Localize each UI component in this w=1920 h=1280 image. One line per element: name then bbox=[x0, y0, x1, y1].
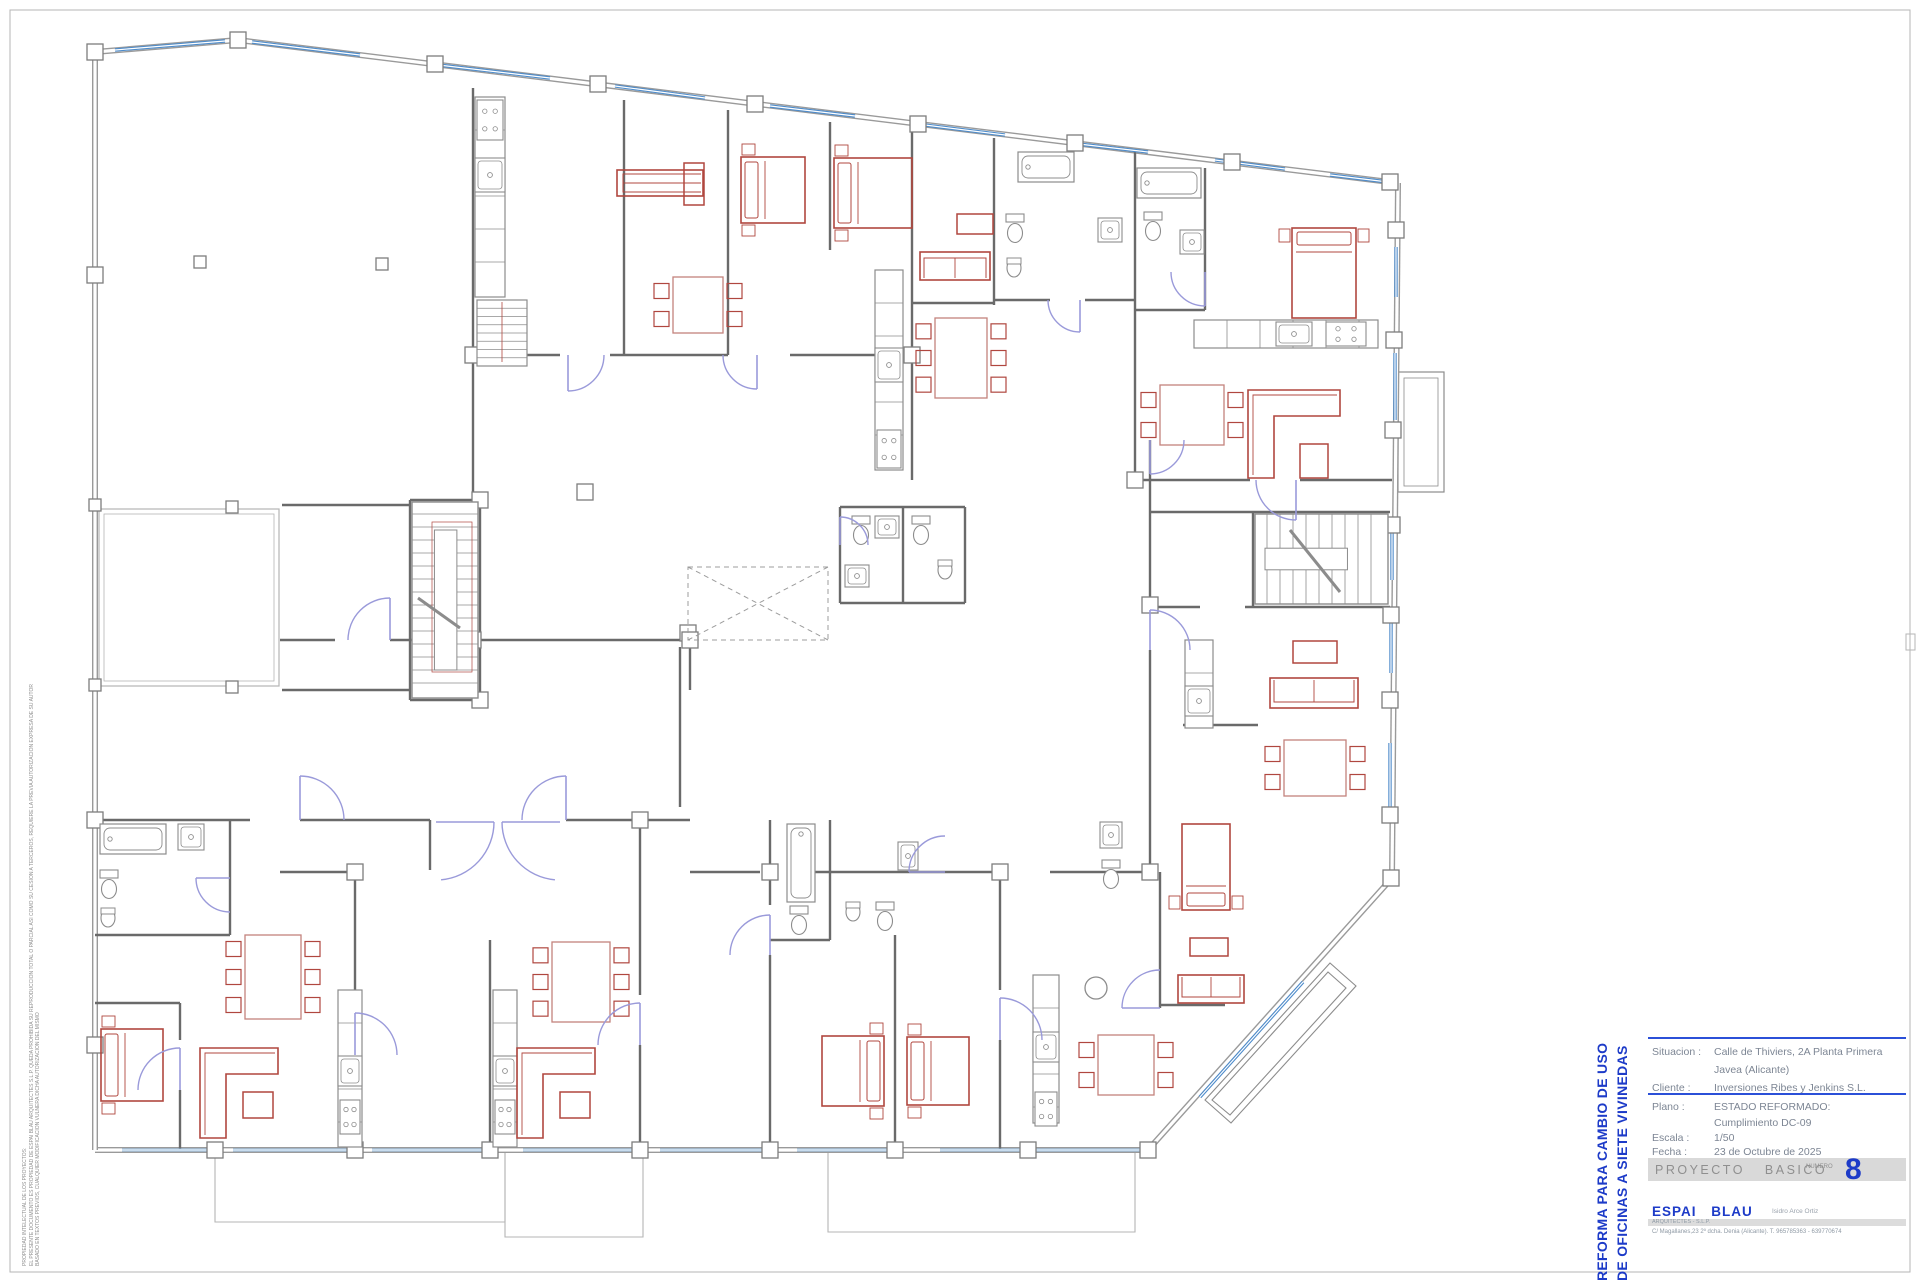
window bbox=[615, 86, 705, 98]
column bbox=[762, 1142, 778, 1158]
firm-name: ESPAI BLAU bbox=[1652, 1204, 1753, 1219]
door bbox=[502, 822, 560, 880]
bed bbox=[1279, 228, 1369, 318]
coffee-table bbox=[243, 1092, 273, 1118]
column bbox=[577, 484, 593, 500]
window bbox=[430, 64, 550, 78]
toilet bbox=[876, 902, 894, 931]
column bbox=[992, 864, 1008, 880]
sink bbox=[1098, 218, 1122, 242]
column bbox=[207, 1142, 223, 1158]
architect-name: Isidro Arce Ortiz bbox=[1772, 1208, 1818, 1215]
door bbox=[196, 878, 230, 912]
sink bbox=[178, 824, 204, 850]
door bbox=[348, 598, 390, 640]
cooktop bbox=[340, 1100, 360, 1134]
door bbox=[1171, 272, 1205, 306]
sink bbox=[875, 516, 899, 538]
column bbox=[1142, 864, 1158, 880]
column bbox=[376, 258, 388, 270]
sink bbox=[493, 1056, 517, 1086]
staircase bbox=[1255, 514, 1388, 604]
fecha-value: 23 de Octubre de 2025 bbox=[1714, 1146, 1821, 1158]
plano-label: Plano : bbox=[1652, 1101, 1685, 1113]
firm-address: C/ Magallanes,23 2º dcha. Denia (Alicant… bbox=[1652, 1229, 1842, 1235]
column bbox=[1382, 807, 1398, 823]
door bbox=[568, 355, 604, 391]
outline bbox=[104, 514, 274, 681]
cooktop bbox=[1035, 1092, 1057, 1126]
column bbox=[904, 347, 920, 363]
bidet bbox=[101, 908, 115, 927]
sofa bbox=[920, 252, 990, 280]
door bbox=[138, 1048, 180, 1090]
dining-table bbox=[533, 942, 629, 1022]
bidet bbox=[846, 902, 860, 921]
column bbox=[632, 1142, 648, 1158]
terrace-outline bbox=[215, 1152, 505, 1222]
door bbox=[522, 776, 566, 820]
door bbox=[723, 355, 757, 389]
sheet-number: 8 bbox=[1845, 1153, 1862, 1187]
toilet bbox=[790, 906, 808, 935]
round-table bbox=[1085, 977, 1107, 999]
outline bbox=[1398, 372, 1444, 492]
floor-plan-canvas bbox=[0, 0, 1920, 1280]
titleblock-separator bbox=[1648, 1093, 1906, 1095]
sink bbox=[898, 842, 918, 870]
terrace-outline bbox=[505, 1152, 643, 1237]
cooktop bbox=[877, 430, 901, 468]
terrace-outline bbox=[828, 1152, 1135, 1232]
terrace-outline bbox=[1212, 972, 1346, 1115]
bed bbox=[907, 1024, 969, 1118]
terrace-outline bbox=[1205, 963, 1356, 1123]
sink bbox=[475, 158, 505, 192]
cooktop bbox=[477, 100, 503, 140]
titleblock-separator bbox=[1648, 1037, 1906, 1039]
column bbox=[89, 499, 101, 511]
cooktop bbox=[1326, 322, 1366, 346]
column bbox=[1020, 1142, 1036, 1158]
plano-value: ESTADO REFORMADO: bbox=[1714, 1101, 1830, 1113]
column bbox=[87, 267, 103, 283]
column bbox=[347, 864, 363, 880]
bidet bbox=[1007, 258, 1021, 277]
column bbox=[89, 679, 101, 691]
bed bbox=[101, 1016, 163, 1114]
toilet bbox=[1144, 212, 1162, 241]
door bbox=[300, 776, 344, 820]
copyright-line: BASADO EN TEXTOS PREVIOS, CUALQUIER MODI… bbox=[35, 936, 42, 1266]
window bbox=[770, 106, 855, 116]
bed bbox=[822, 1023, 884, 1119]
plano-value-2: Cumplimiento DC-09 bbox=[1714, 1117, 1811, 1129]
column bbox=[1388, 222, 1404, 238]
column bbox=[1140, 1142, 1156, 1158]
bathtub bbox=[787, 824, 815, 902]
fecha-label: Fecha : bbox=[1652, 1146, 1687, 1158]
sofa bbox=[1270, 678, 1358, 708]
sink bbox=[1276, 322, 1312, 346]
column bbox=[1386, 332, 1402, 348]
bed bbox=[741, 144, 805, 236]
situacion-value: Calle de Thiviers, 2A Planta Primera bbox=[1714, 1046, 1882, 1058]
bathtub bbox=[1137, 168, 1201, 198]
door bbox=[1122, 970, 1160, 1008]
copyright-note: PROPIEDAD INTELECTUAL DE LOS PROYECTOS: … bbox=[22, 936, 42, 1266]
column bbox=[194, 256, 206, 268]
outline bbox=[99, 509, 279, 686]
toilet bbox=[100, 870, 118, 899]
column bbox=[1067, 135, 1083, 151]
numero-label: NUMERO bbox=[1806, 1164, 1833, 1170]
bed bbox=[1169, 824, 1243, 910]
vertical-title-line2: DE OFICINAS A SIETE VIVINEDAS bbox=[1614, 1029, 1630, 1280]
column bbox=[427, 56, 443, 72]
outline bbox=[1404, 378, 1438, 486]
column bbox=[1383, 607, 1399, 623]
window bbox=[1200, 982, 1303, 1097]
column bbox=[632, 812, 648, 828]
bidet bbox=[938, 560, 952, 579]
drawing-sheet: REFORMA PARA CAMBIO DE USO DE OFICINAS A… bbox=[0, 0, 1920, 1280]
sink bbox=[1185, 686, 1213, 716]
escala-value: 1/50 bbox=[1714, 1132, 1734, 1144]
dining-table bbox=[1079, 1035, 1173, 1095]
column bbox=[226, 681, 238, 693]
column bbox=[1385, 422, 1401, 438]
situacion-value-2: Javea (Alicante) bbox=[1714, 1064, 1789, 1076]
sink bbox=[1100, 822, 1122, 848]
dining-table bbox=[1141, 385, 1243, 445]
phase-text: PROYECTO BASICO bbox=[1655, 1163, 1827, 1177]
door bbox=[1150, 610, 1190, 650]
column bbox=[910, 116, 926, 132]
column bbox=[887, 1142, 903, 1158]
toilet bbox=[912, 516, 930, 545]
toilet bbox=[1102, 860, 1120, 889]
column bbox=[87, 44, 103, 60]
situacion-label: Situacion : bbox=[1652, 1046, 1701, 1058]
bed bbox=[834, 145, 912, 241]
column bbox=[747, 96, 763, 112]
dining-table bbox=[1265, 740, 1365, 796]
sink bbox=[1033, 1032, 1059, 1062]
dining-table bbox=[226, 935, 320, 1019]
column bbox=[1224, 154, 1240, 170]
corner-sofa bbox=[200, 1048, 278, 1138]
sofa bbox=[1178, 975, 1244, 1003]
sink bbox=[875, 348, 903, 382]
firm-subtitle: ARQUITECTES - S.L.P. bbox=[1652, 1219, 1710, 1225]
column bbox=[590, 76, 606, 92]
door bbox=[598, 1003, 640, 1045]
bathtub bbox=[100, 824, 166, 854]
coffee-table bbox=[1293, 641, 1337, 663]
window bbox=[925, 125, 1005, 135]
exterior-wall bbox=[1148, 878, 1392, 1150]
column bbox=[1382, 692, 1398, 708]
column bbox=[230, 32, 246, 48]
door bbox=[436, 822, 494, 880]
escala-label: Escala : bbox=[1652, 1132, 1689, 1144]
door bbox=[730, 915, 770, 955]
window bbox=[252, 42, 360, 55]
column bbox=[762, 864, 778, 880]
sink bbox=[1180, 230, 1204, 254]
coffee-table bbox=[1190, 938, 1228, 956]
coffee-table bbox=[1300, 444, 1328, 478]
column bbox=[1383, 870, 1399, 886]
corner-sofa bbox=[517, 1048, 595, 1138]
dining-table bbox=[916, 318, 1006, 398]
column bbox=[1127, 472, 1143, 488]
shaft-void bbox=[688, 567, 828, 640]
column bbox=[226, 501, 238, 513]
door bbox=[1048, 300, 1080, 332]
bathtub bbox=[1018, 152, 1074, 182]
cooktop bbox=[495, 1100, 515, 1134]
coffee-table bbox=[560, 1092, 590, 1118]
sink bbox=[338, 1056, 362, 1086]
sofa bbox=[617, 170, 703, 196]
coffee-table bbox=[957, 214, 993, 234]
toilet bbox=[1006, 214, 1024, 243]
vertical-title-line1: REFORMA PARA CAMBIO DE USO bbox=[1594, 1029, 1610, 1280]
corner-sofa bbox=[1248, 390, 1340, 478]
sink bbox=[845, 565, 869, 587]
column bbox=[1382, 174, 1398, 190]
